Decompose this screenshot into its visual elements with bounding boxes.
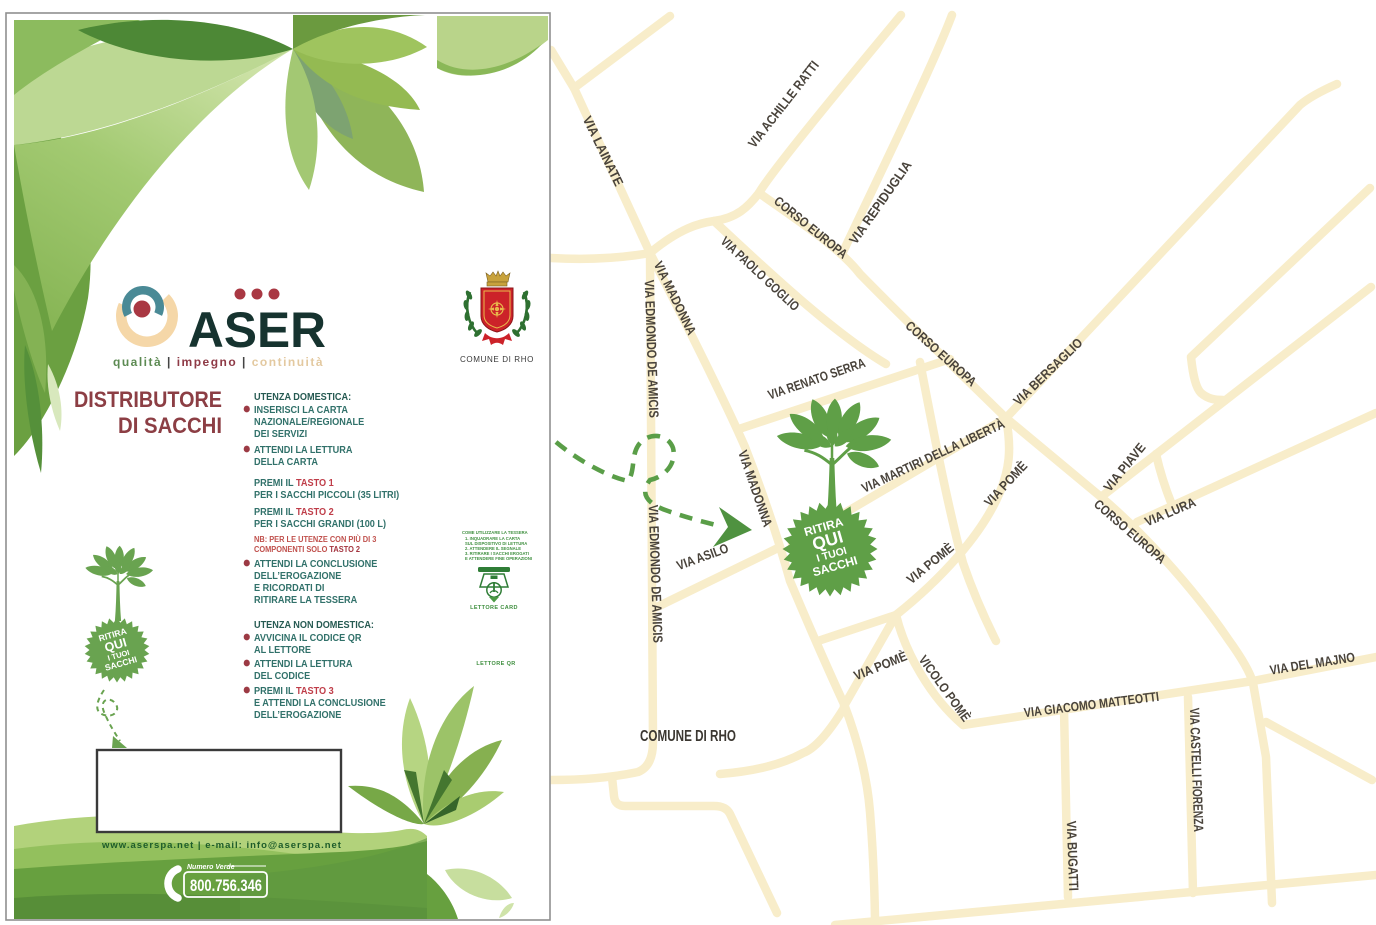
svg-text:COMUNE DI RHO: COMUNE DI RHO	[640, 728, 736, 745]
svg-text:RITIRARE LA TESSERA: RITIRARE LA TESSERA	[254, 595, 357, 607]
svg-text:NAZIONALE/REGIONALE: NAZIONALE/REGIONALE	[254, 417, 365, 429]
svg-text:COMUNE DI RHO: COMUNE DI RHO	[460, 355, 534, 364]
svg-text:DELL’EROGAZIONE: DELL’EROGAZIONE	[254, 571, 342, 583]
svg-text:PREMI IL TASTO 1: PREMI IL TASTO 1	[254, 478, 334, 490]
svg-text:DEL CODICE: DEL CODICE	[254, 671, 311, 683]
svg-text:UTENZA DOMESTICA:: UTENZA DOMESTICA:	[254, 392, 351, 404]
svg-text:ATTENDI LA LETTURA: ATTENDI LA LETTURA	[254, 659, 353, 671]
svg-text:COME UTILIZZARE LA TESSERA: COME UTILIZZARE LA TESSERA	[462, 530, 528, 535]
svg-text:PER I SACCHI GRANDI (100 L): PER I SACCHI GRANDI (100 L)	[254, 519, 386, 531]
svg-text:ASER: ASER	[188, 302, 326, 358]
svg-text:PREMI IL TASTO 2: PREMI IL TASTO 2	[254, 507, 334, 519]
svg-text:DEI SERVIZI: DEI SERVIZI	[254, 429, 307, 441]
svg-text:DELLA CARTA: DELLA CARTA	[254, 457, 318, 469]
svg-text:UTENZA NON DOMESTICA:: UTENZA NON DOMESTICA:	[254, 620, 374, 632]
svg-text:AVVICINA IL CODICE QR: AVVICINA IL CODICE QR	[254, 633, 362, 645]
svg-text:AL LETTORE: AL LETTORE	[254, 645, 312, 657]
svg-text:LETTORE CARD: LETTORE CARD	[470, 605, 518, 611]
svg-text:DI SACCHI: DI SACCHI	[118, 413, 222, 438]
svg-text:COMPONENTI SOLO TASTO 2: COMPONENTI SOLO TASTO 2	[254, 545, 361, 554]
svg-text:PER I SACCHI PICCOLI (35 LITRI: PER I SACCHI PICCOLI (35 LITRI)	[254, 490, 399, 502]
svg-text:www.aserspa.net | e-mail: info: www.aserspa.net | e-mail: info@aserspa.n…	[101, 840, 342, 851]
svg-text:ATTENDI LA CONCLUSIONE: ATTENDI LA CONCLUSIONE	[254, 559, 378, 571]
svg-text:qualità | impegno | continuità: qualità | impegno | continuità	[113, 355, 324, 369]
svg-text:NB: PER LE UTENZE CON PIÙ DI 3: NB: PER LE UTENZE CON PIÙ DI 3	[254, 535, 377, 544]
svg-text:VIA BUGATTI: VIA BUGATTI	[1064, 821, 1081, 891]
svg-text:DELL’EROGAZIONE: DELL’EROGAZIONE	[254, 710, 342, 722]
svg-text:E RICORDATI DI: E RICORDATI DI	[254, 583, 325, 595]
svg-text:800.756.346: 800.756.346	[190, 877, 262, 895]
svg-text:E ATTENDI LA CONCLUSIONE: E ATTENDI LA CONCLUSIONE	[254, 698, 386, 710]
svg-text:E ATTENDERE FINE OPERAZIONI: E ATTENDERE FINE OPERAZIONI	[465, 556, 532, 561]
svg-text:LETTORE QR: LETTORE QR	[476, 661, 515, 667]
svg-text:ATTENDI LA LETTURA: ATTENDI LA LETTURA	[254, 445, 353, 457]
svg-text:INSERISCI LA CARTA: INSERISCI LA CARTA	[254, 405, 348, 417]
svg-text:PREMI IL TASTO 3: PREMI IL TASTO 3	[254, 686, 334, 698]
svg-text:DISTRIBUTORE: DISTRIBUTORE	[74, 387, 222, 412]
svg-text:Numero Verde: Numero Verde	[187, 864, 235, 871]
